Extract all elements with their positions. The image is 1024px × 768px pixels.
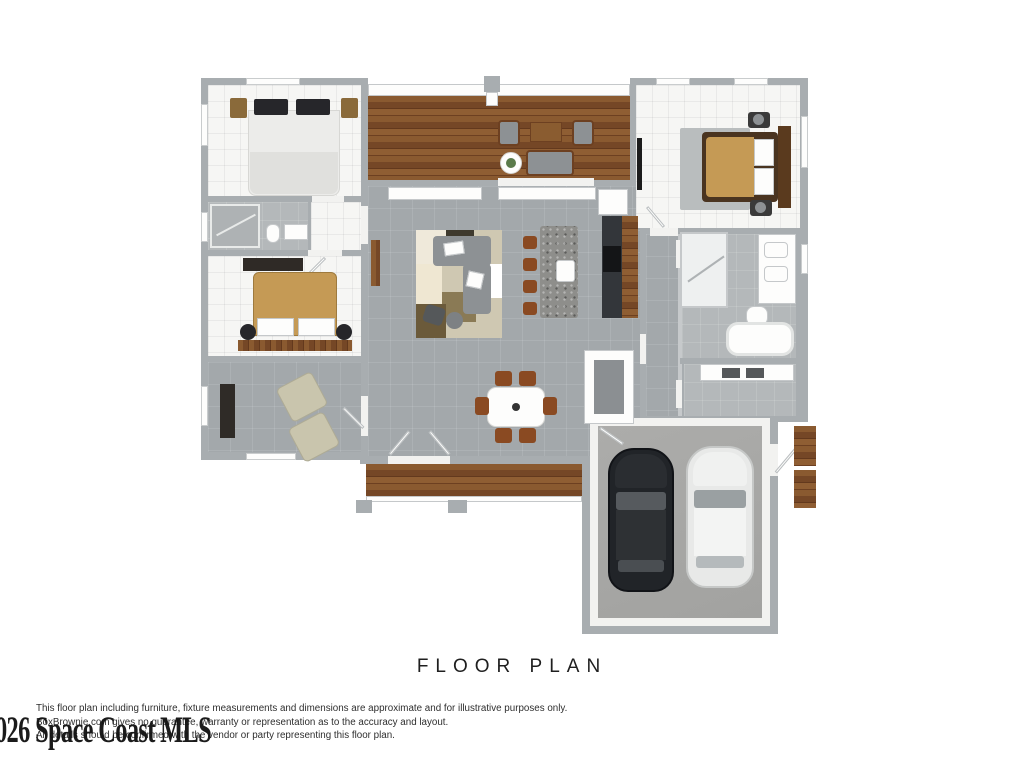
bedroom1-nightstand-left — [230, 98, 247, 118]
patio-plant — [506, 158, 516, 168]
patio-loveseat — [526, 150, 574, 176]
living-rug-patch-3 — [416, 264, 442, 304]
car-black-hood — [615, 454, 667, 488]
bedroom2-door-opening — [308, 250, 342, 256]
laundry-door-opening — [676, 380, 682, 408]
hall-to-living-opening — [361, 206, 368, 244]
car-black — [608, 448, 674, 592]
kitchen-cabinet-wood — [622, 216, 638, 318]
patio-coffee-table — [530, 122, 562, 142]
dining-chair-bottom-2 — [519, 428, 536, 443]
dining-chair-left — [475, 397, 489, 415]
kitchen-hall-opening — [640, 334, 646, 364]
living-ottoman — [446, 312, 463, 329]
patio-slider-opening — [498, 178, 594, 186]
bedroom2-table-right — [336, 324, 352, 340]
bedroom1-blanket — [250, 152, 338, 194]
master-bed — [706, 137, 754, 197]
bedroom2-table-left — [240, 324, 256, 340]
master-pillow-top — [754, 139, 774, 166]
bedroom2-bench — [238, 340, 352, 351]
garage-side-gate-top — [794, 426, 816, 466]
kitchen-stool-3 — [523, 280, 537, 293]
bedroom1-pillow-left — [254, 99, 288, 115]
den-left-window — [201, 386, 208, 426]
deck-post-top-base — [486, 92, 498, 106]
deck-step-left — [356, 500, 372, 513]
deck-post-top — [484, 76, 500, 92]
entry-opening — [388, 456, 450, 464]
kitchen-top-counter-left — [388, 187, 482, 200]
master-headboard — [778, 126, 791, 208]
car-white-windshield — [694, 490, 746, 508]
bathroom1-toilet — [266, 224, 280, 243]
master-lamp-bottom — [755, 202, 766, 213]
garage-side-gate-bottom — [794, 470, 816, 508]
master-bath-right-window — [801, 244, 808, 274]
living-wall-cabinet — [371, 240, 380, 286]
bedroom2-pillow-right — [298, 318, 335, 336]
bedroom1-pillow-right — [296, 99, 330, 115]
master-tub — [726, 322, 794, 356]
floor-plan-image: FLOOR PLAN This floor plan including fur… — [0, 0, 1024, 768]
master-sink-1 — [764, 242, 788, 258]
bathroom1-left-window — [201, 212, 208, 242]
kitchen-stool-2 — [523, 258, 537, 271]
living-sofa-pillow — [466, 271, 485, 290]
patio-chair-right — [572, 120, 594, 146]
dining-chair-bottom-1 — [495, 428, 512, 443]
kitchen-top-counter-right — [498, 187, 596, 200]
dining-centerpiece — [512, 403, 520, 411]
patio-chair-left — [498, 120, 520, 146]
hall1-floor — [311, 202, 361, 250]
car-white-hood — [693, 452, 747, 486]
laundry-washer — [722, 368, 740, 378]
den-bottom-window — [246, 453, 296, 460]
kitchen-stove — [603, 246, 621, 272]
kitchen-stool-1 — [523, 236, 537, 249]
den-opening — [361, 396, 368, 436]
bedroom1-left-window — [201, 104, 208, 146]
kitchen-island-sink — [556, 260, 575, 282]
entry-closet-floor — [594, 360, 624, 414]
page-title: FLOOR PLAN — [0, 656, 1024, 678]
master-top-window-1 — [656, 78, 690, 85]
master-door-opening — [650, 228, 678, 236]
bedroom1-door-opening — [312, 196, 344, 202]
deck-bottom-rail — [366, 496, 582, 502]
master-top-window-2 — [734, 78, 768, 85]
living-sofa-cushion — [443, 241, 465, 257]
bathroom1-vanity — [284, 224, 308, 240]
car-white-roof — [694, 508, 746, 556]
car-white — [686, 446, 754, 588]
car-black-rear-window — [618, 560, 664, 572]
kitchen-fridge — [598, 189, 628, 215]
mls-watermark: 026 Space Coast MLS — [0, 709, 211, 752]
master-sink-2 — [764, 266, 788, 282]
floor-plan-page: FLOOR PLAN This floor plan including fur… — [0, 0, 1024, 768]
master-lamp-top — [753, 114, 764, 125]
kitchen-stool-4 — [523, 302, 537, 315]
deck-step-mid — [448, 500, 467, 513]
bedroom2-dresser — [243, 258, 303, 271]
dining-chair-top-2 — [519, 371, 536, 386]
car-black-windshield — [616, 492, 666, 510]
car-white-rear-window — [696, 556, 744, 568]
car-black-roof — [616, 510, 666, 560]
bedroom1-top-window — [246, 78, 300, 85]
dining-chair-right — [543, 397, 557, 415]
master-pillow-bottom — [754, 168, 774, 195]
hallway-floor — [646, 234, 678, 416]
bedroom1-nightstand-right — [341, 98, 358, 118]
den-media-console — [220, 384, 235, 438]
laundry-dryer — [746, 368, 764, 378]
bedroom2-pillow-left — [257, 318, 294, 336]
master-tv — [637, 138, 642, 190]
master-right-window — [801, 116, 808, 168]
deck-bottom — [366, 464, 582, 498]
dining-chair-top-1 — [495, 371, 512, 386]
